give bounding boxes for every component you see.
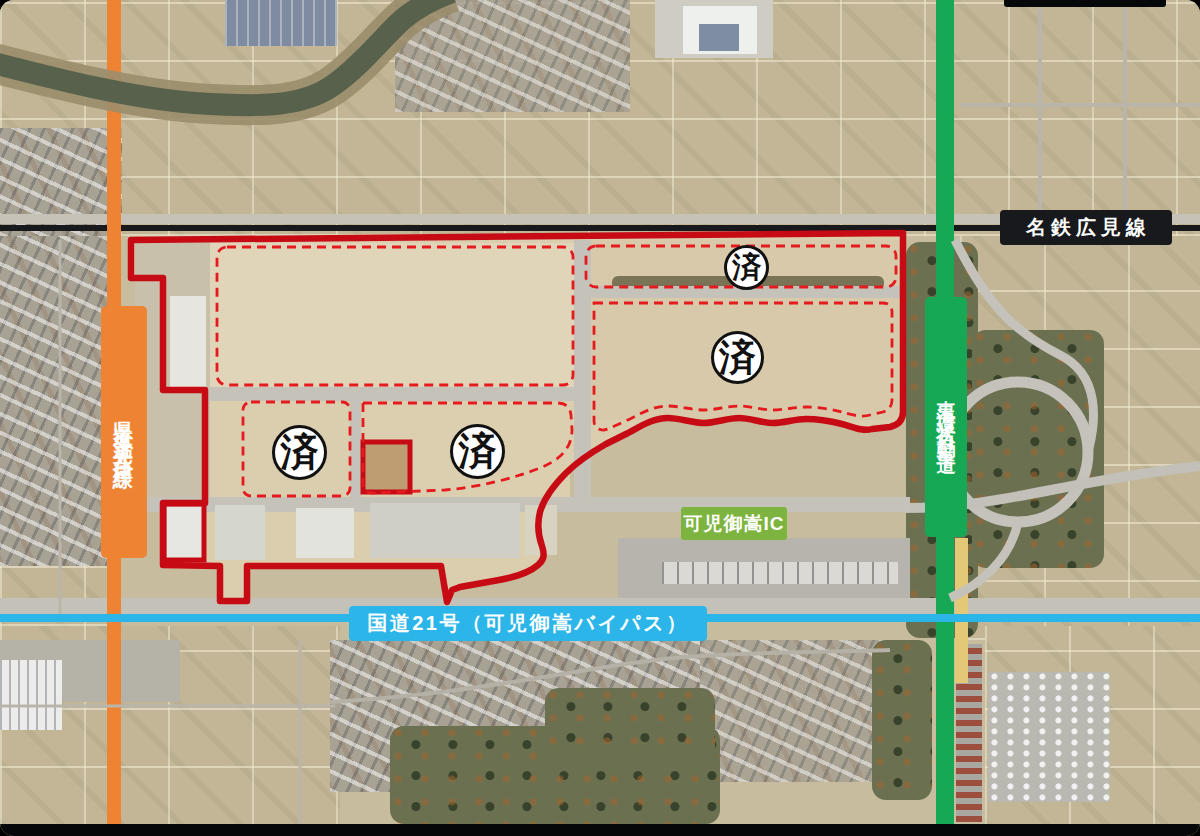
completed-marker: 済 (272, 425, 327, 480)
top-clipped-black-bar (1004, 0, 1166, 7)
forest-along-expressway (872, 640, 932, 800)
forest-south-small (545, 688, 715, 760)
completed-marker-text: 済 (732, 248, 761, 288)
village-southeast (700, 640, 892, 782)
route21-label-text: 国道21号（可児御嵩バイパス） (367, 610, 689, 637)
interchange-label: 可児御嵩IC (681, 507, 787, 540)
completed-marker: 済 (711, 331, 764, 384)
route21-label: 国道21号（可児御嵩バイパス） (349, 606, 707, 641)
village-north-mid (395, 0, 630, 112)
completed-marker: 済 (724, 245, 769, 290)
solar-array (225, 0, 337, 46)
factory-building-north (683, 6, 757, 54)
warehouse-southwest (0, 660, 62, 730)
completed-marker-text: 済 (281, 427, 319, 478)
railway-label-text: 名鉄広見線 (1026, 214, 1151, 241)
completed-marker: 済 (450, 424, 505, 479)
bottom-black-bar (0, 824, 1200, 836)
interchange-forest-loop (972, 330, 1104, 568)
truck-parking-southeast (988, 672, 1110, 802)
toll-building (662, 562, 898, 584)
expressway-label-text: 東海環状自動車道 (933, 385, 959, 449)
completed-marker-text: 済 (459, 426, 497, 477)
railway-label: 名鉄広見線 (1000, 210, 1172, 245)
expressway-label: 東海環状自動車道 (925, 297, 967, 537)
interchange-label-text: 可児御嵩IC (684, 511, 785, 537)
pref-road-label: 県道多治見八百津線 (101, 306, 147, 558)
completed-marker-text: 済 (719, 333, 756, 383)
aerial-site-map: 名鉄広見線 県道多治見八百津線 東海環状自動車道 国道21号（可児御嵩バイパス）… (0, 0, 1200, 836)
factory-solar-roof (699, 24, 739, 51)
pref-road-label-text: 県道多治見八百津線 (111, 405, 138, 459)
yellow-construction-road (955, 538, 968, 683)
